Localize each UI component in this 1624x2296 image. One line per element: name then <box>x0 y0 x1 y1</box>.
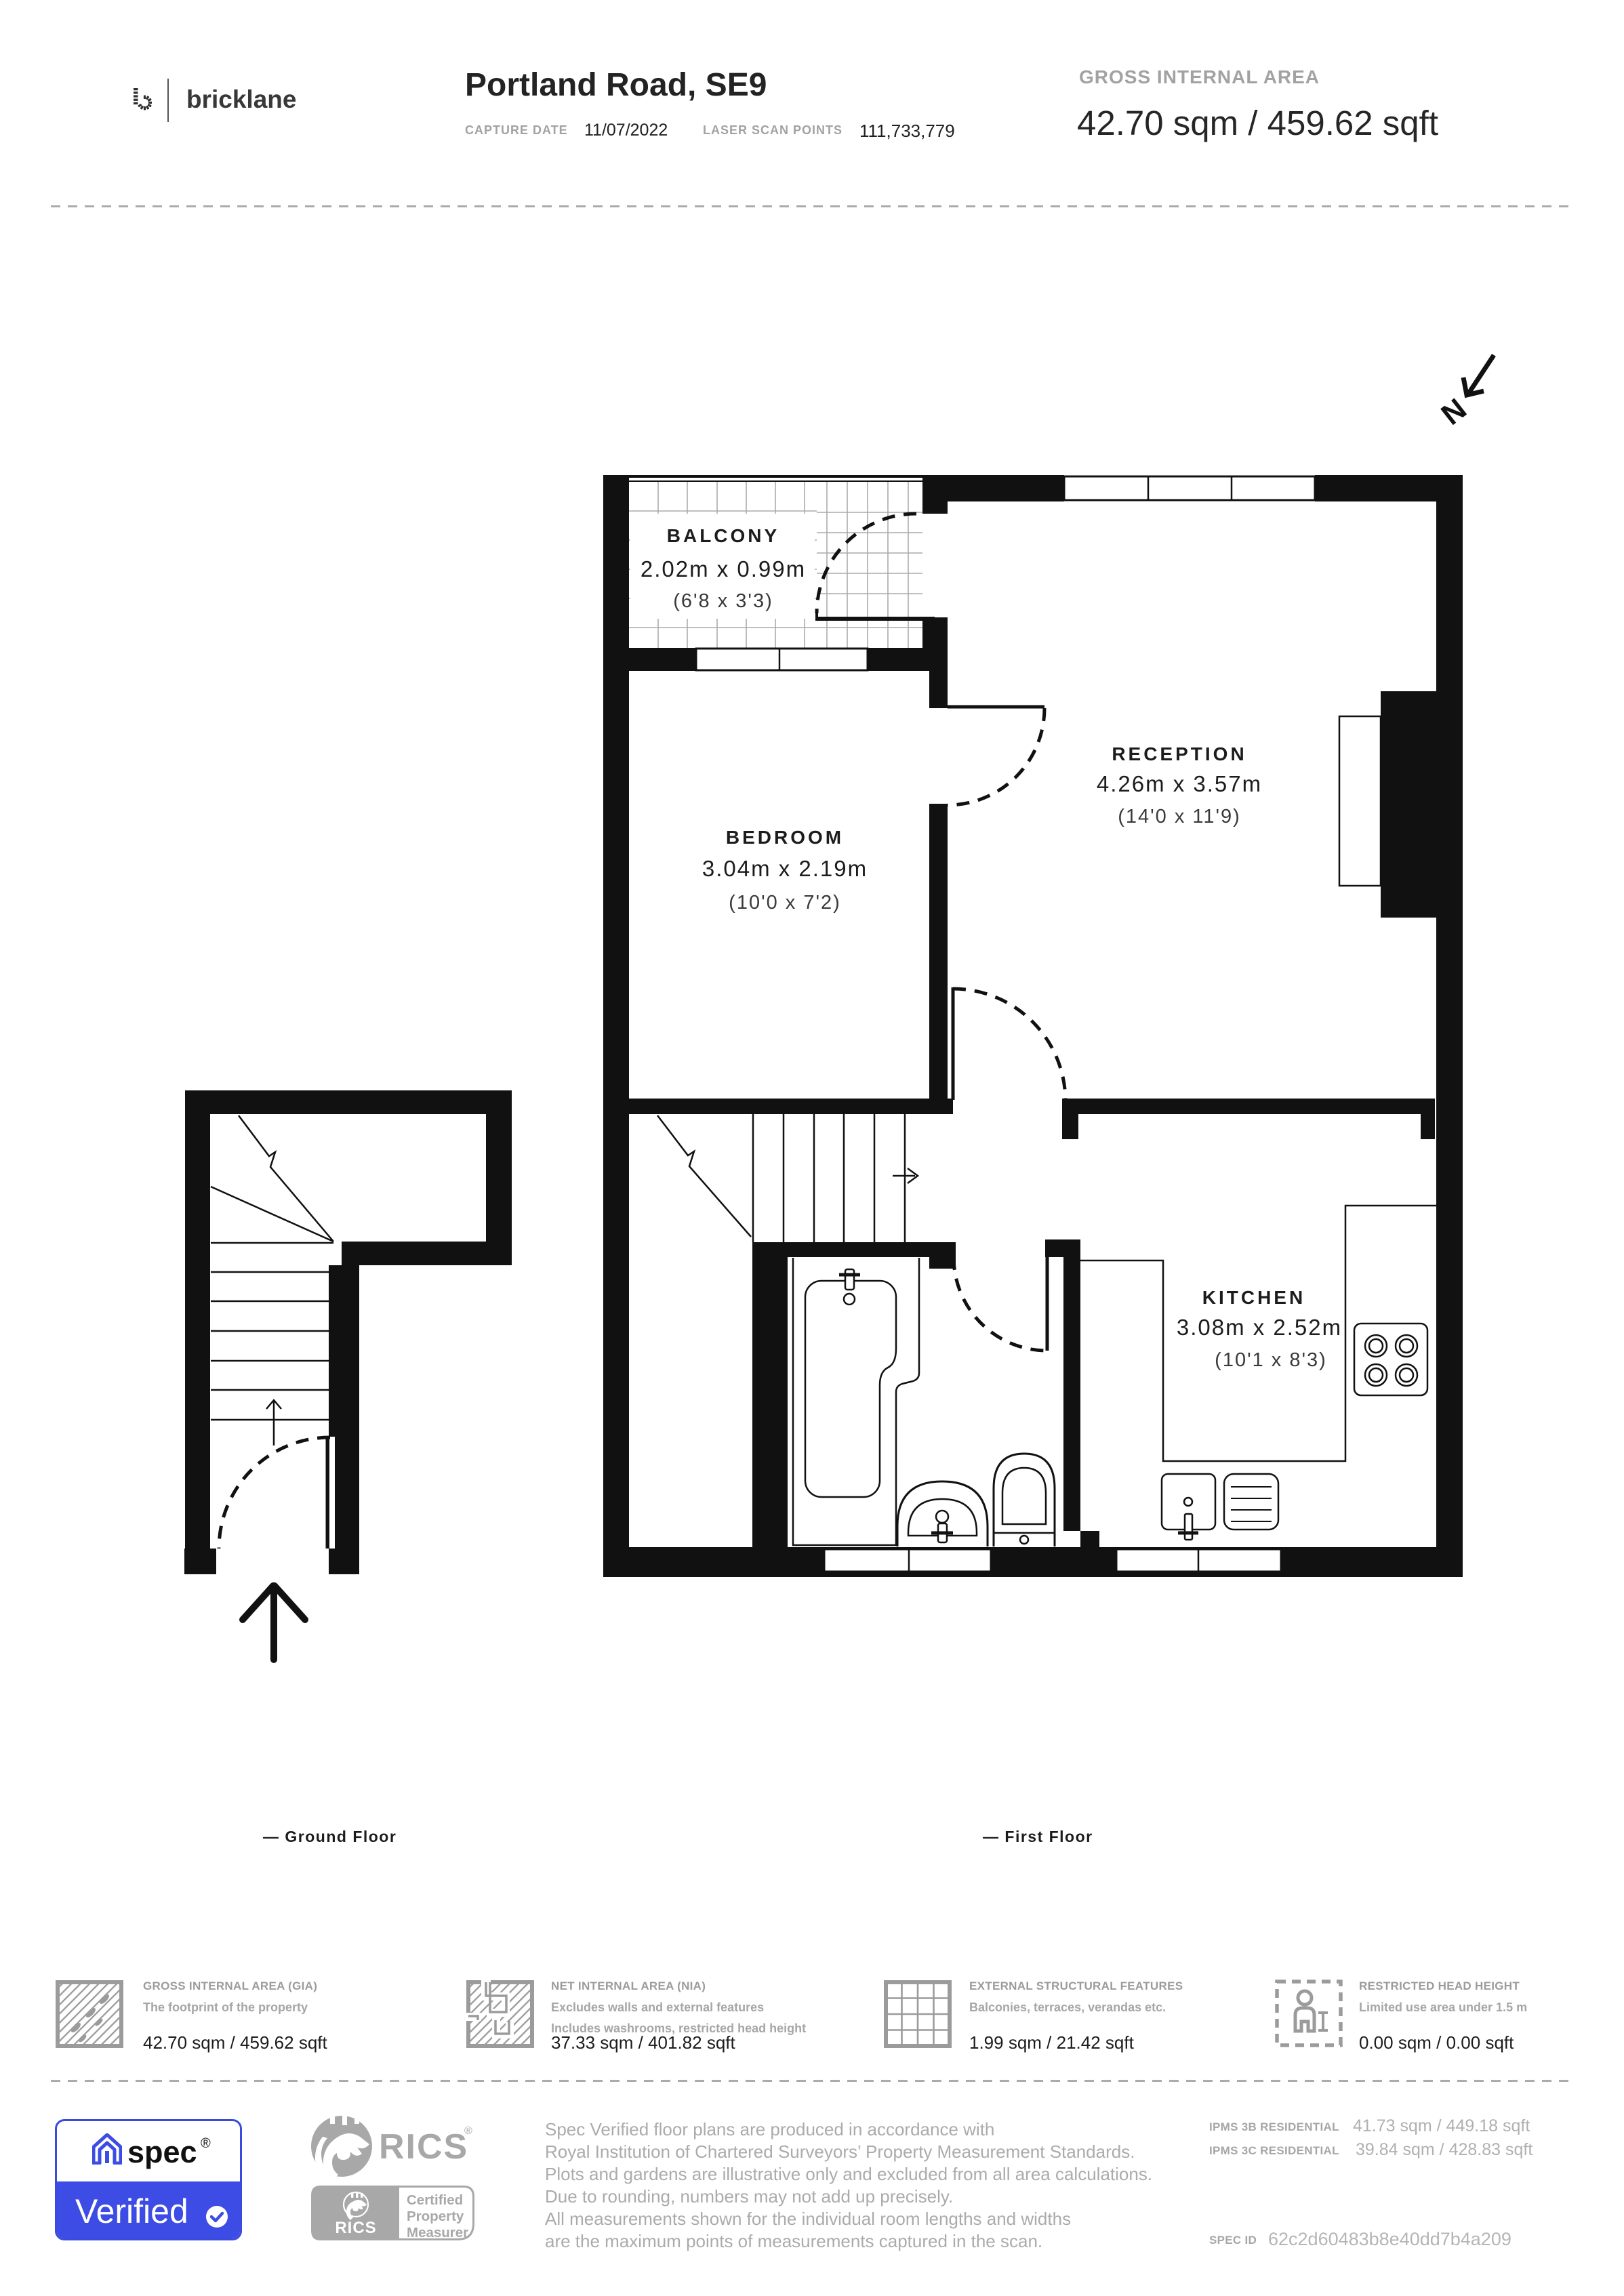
svg-text:RICS: RICS <box>335 2219 376 2237</box>
svg-text:(10'0 x 7'2): (10'0 x 7'2) <box>729 892 841 914</box>
svg-text:(14'0 x 11'9): (14'0 x 11'9) <box>1118 806 1241 827</box>
svg-text:BALCONY: BALCONY <box>667 525 779 546</box>
svg-text:Measurer: Measurer <box>407 2225 468 2240</box>
svg-text:Certified: Certified <box>407 2192 463 2208</box>
svg-text:BEDROOM: BEDROOM <box>726 827 844 848</box>
svg-text:RECEPTION: RECEPTION <box>1112 743 1246 764</box>
svg-text:3.04m x 2.19m: 3.04m x 2.19m <box>702 856 868 881</box>
svg-text:2.02m x 0.99m: 2.02m x 0.99m <box>641 556 806 581</box>
svg-text:(6'8 x 3'3): (6'8 x 3'3) <box>673 590 773 612</box>
svg-text:Property: Property <box>407 2209 464 2224</box>
svg-text:— Ground Floor: — Ground Floor <box>263 1828 397 1845</box>
svg-text:4.26m x 3.57m: 4.26m x 3.57m <box>1097 771 1262 796</box>
svg-text:®: ® <box>464 2125 472 2137</box>
svg-text:3.08m x 2.52m: 3.08m x 2.52m <box>1177 1315 1342 1340</box>
svg-text:RICS: RICS <box>379 2127 468 2167</box>
svg-text:— First Floor: — First Floor <box>983 1828 1093 1845</box>
svg-text:KITCHEN: KITCHEN <box>1202 1287 1305 1308</box>
svg-text:(10'1 x 8'3): (10'1 x 8'3) <box>1215 1349 1327 1371</box>
svg-text:N: N <box>1435 392 1472 432</box>
